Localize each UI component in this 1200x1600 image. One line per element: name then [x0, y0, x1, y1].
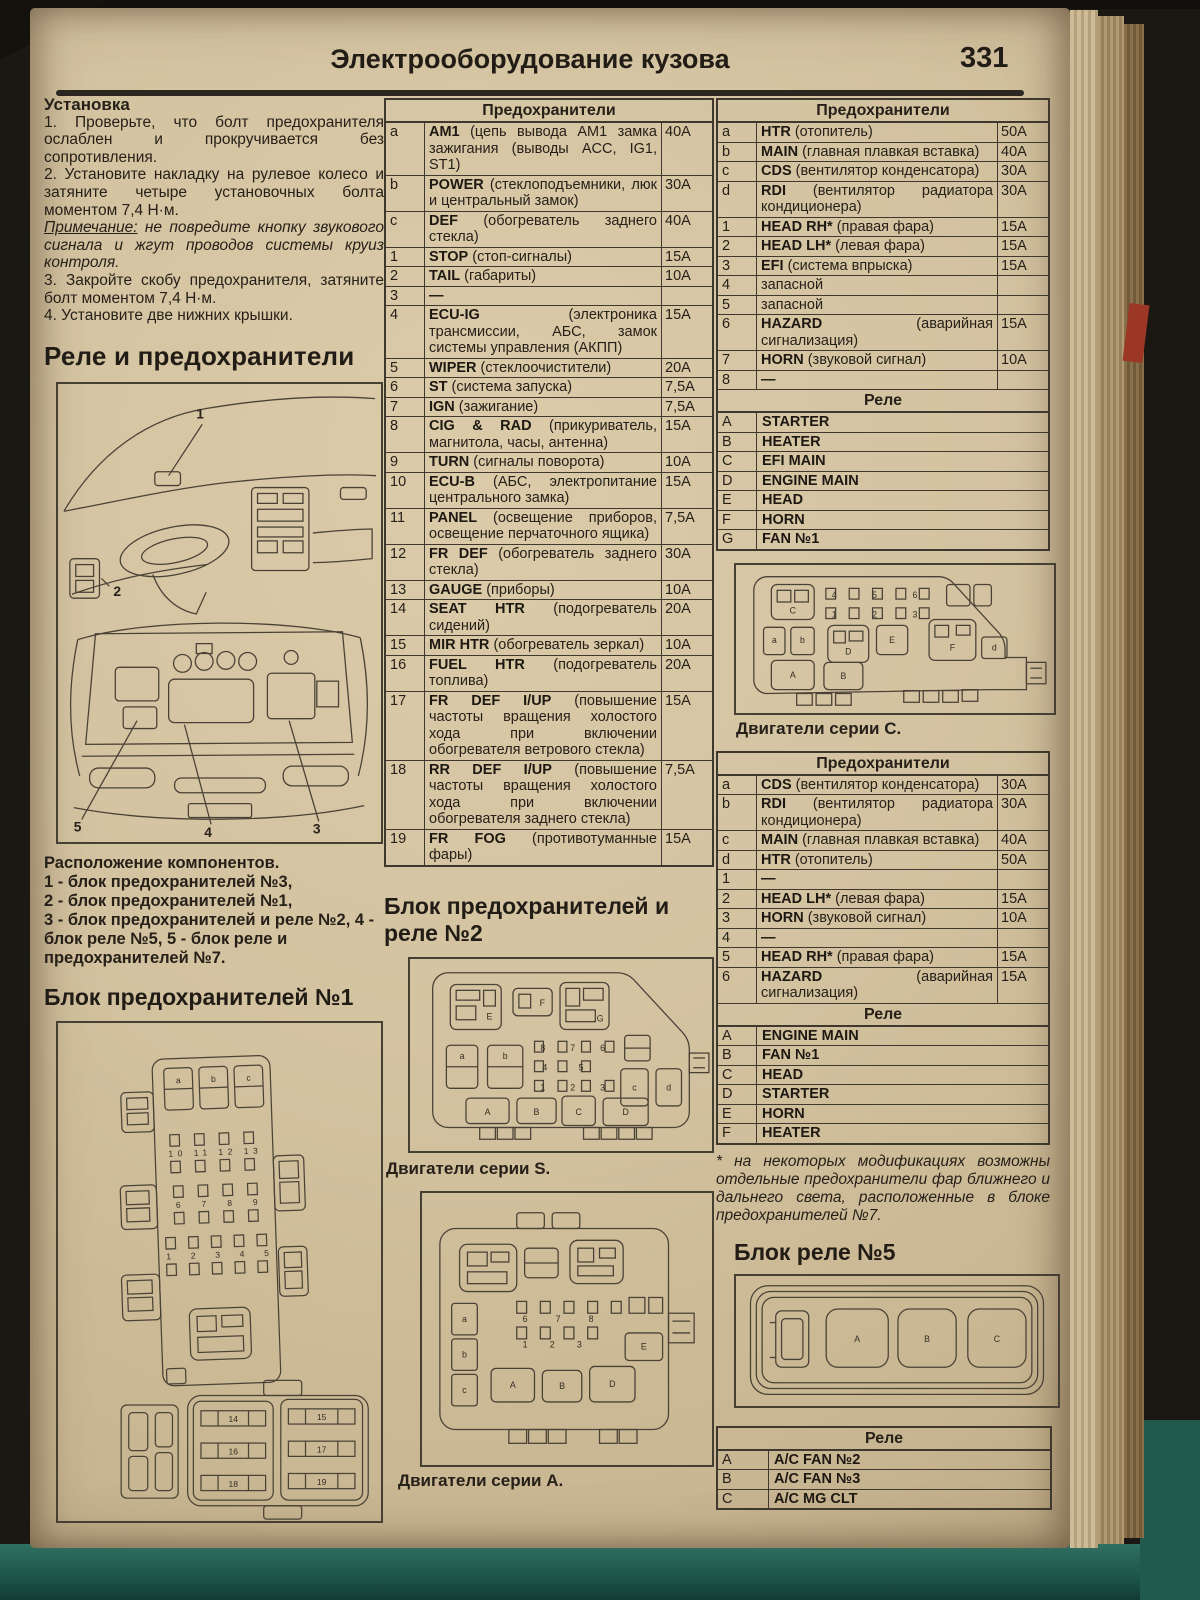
fuse-table-main: Предохранители a AM1 (цепь вывода AM1 за… [384, 98, 714, 867]
fuse-desc: CDS (вентилятор конденсатора) [757, 162, 997, 181]
fuse-id: 19 [386, 830, 425, 865]
relay-name: HEAD [757, 1066, 1048, 1085]
relay-E-label: E [889, 634, 895, 644]
fuse-id: d [718, 851, 757, 870]
fuse-row: 5 HEAD RH* (правая фара) 15A [718, 948, 1048, 968]
fuse-id: 7 [718, 351, 757, 370]
fuse-id: 3 [718, 257, 757, 276]
fuse-amp: 10A [661, 267, 712, 286]
fuse-amp: 15A [997, 257, 1048, 276]
relay-a-label: a [772, 634, 777, 644]
fuse-amp: 7,5A [661, 398, 712, 417]
relay-row: A STARTER [718, 413, 1048, 433]
relay-name: A/C FAN №2 [769, 1451, 1050, 1470]
relay-row: B A/C FAN №3 [718, 1470, 1050, 1490]
fuse-id: a [718, 776, 757, 795]
fuse-desc: HAZARD (аварийная сигнализация) [757, 968, 997, 1003]
fuse-id: 5 [386, 359, 425, 378]
relay-id: C [718, 1066, 757, 1085]
relay-id: A [718, 413, 757, 432]
fuse-table-r1-title: Предохранители [718, 100, 1048, 123]
fuse-amp: 30A [997, 162, 1048, 181]
fuse-row: 5 запасной [718, 296, 1048, 316]
fuse-desc: PANEL (освещение приборов, освещение пер… [425, 509, 661, 544]
fuse-row: 2 TAIL (габариты) 10A [386, 267, 712, 287]
relay-row: D ENGINE MAIN [718, 472, 1048, 492]
location-line: 3 - блок предохранителей и реле №2, 4 - … [44, 911, 384, 968]
relay-C-label: C [575, 1106, 582, 1116]
install-step: 4. Установите две нижних крышки. [44, 307, 384, 325]
fuse-row: 4 запасной [718, 276, 1048, 296]
fuse-desc: HEAD LH* (левая фара) [757, 890, 997, 909]
fuse-amp: 15A [997, 218, 1048, 237]
fuse-id: 5 [718, 296, 757, 315]
relay-row: B HEATER [718, 433, 1048, 453]
fuse-row: 2 HEAD LH* (левая фара) 15A [718, 890, 1048, 910]
relay-name: HORN [757, 1105, 1048, 1124]
install-step: 3. Закройте скобу предохранителя, затяни… [44, 272, 384, 307]
fuse-16-label: 16 [229, 1446, 239, 1456]
fuse-row: c MAIN (главная плавкая вставка) 40A [718, 831, 1048, 851]
fuse-row: 4 ECU-IG (электроника трансмиссии, АБС, … [386, 306, 712, 359]
fuse-id: 6 [386, 378, 425, 397]
fuse-id: 17 [386, 692, 425, 760]
series-a-diagram: 6 7 8 1 2 3 a b c A B D E [422, 1193, 712, 1465]
fuse-table-main-rows: a AM1 (цепь вывода AM1 замка зажигания (… [386, 123, 712, 865]
fuse-desc: RDI (вентилятор радиатора кондиционера) [757, 795, 997, 830]
fuse-id: 1 [718, 218, 757, 237]
fuse-amp [997, 929, 1048, 948]
series-c-caption: Двигатели серии C. [736, 719, 1050, 739]
fusebox2-heading: Блок предохранителей и реле №2 [384, 893, 684, 947]
fuse-desc: FR DEF (обогреватель заднего стекла) [425, 545, 661, 580]
fuse-table-main-title: Предохранители [386, 100, 712, 123]
relay-row: F HEATER [718, 1124, 1048, 1143]
relay-f-label: F [540, 998, 546, 1008]
fusebox1-figure: a b c 10 11 12 13 6 7 8 9 [56, 1021, 383, 1523]
callout-1: 1 [196, 405, 204, 421]
fuse-row: c DEF (обогреватель заднего стекла) 40A [386, 212, 712, 248]
fuse-desc: TAIL (габариты) [425, 267, 661, 286]
relay-name: FAN №1 [757, 530, 1048, 549]
fuse-row: 11 PANEL (освещение приборов, освещение … [386, 509, 712, 545]
fuse-b-label: b [211, 1074, 216, 1084]
fuse-desc: HTR (отопитель) [757, 123, 997, 142]
callout-5: 5 [74, 818, 82, 834]
fuse-amp: 20A [661, 359, 712, 378]
fuse-id: 8 [718, 371, 757, 390]
fuse-row: b RDI (вентилятор радиатора кондиционера… [718, 795, 1048, 831]
fuse-desc: CIG & RAD (прикуриватель, магнитола, час… [425, 417, 661, 452]
fuse-row: 1 HEAD RH* (правая фара) 15A [718, 218, 1048, 238]
relay-b-label: b [800, 634, 805, 644]
relay-A-label: A [485, 1106, 491, 1116]
fuse-row: 19 FR FOG (противотуманные фары) 15A [386, 830, 712, 865]
fuse-id: c [386, 212, 425, 247]
fuse-desc: SEAT HTR (подогреватель сидений) [425, 600, 661, 635]
relay-name: ENGINE MAIN [757, 1027, 1048, 1046]
fuse-desc: RDI (вентилятор радиатора кондиционера) [757, 182, 997, 217]
fuse-amp: 15A [661, 248, 712, 267]
relay-name: STARTER [757, 413, 1048, 432]
middle-column: Предохранители a AM1 (цепь вывода AM1 за… [384, 98, 714, 1491]
fuse-desc: — [757, 371, 997, 390]
series-s-figure: E F G a b 8 7 6 4 5 1 2 3 [408, 957, 714, 1153]
fuse-id: 4 [386, 306, 425, 358]
relay-row: C A/C MG CLT [718, 1490, 1050, 1509]
book-page: Электрооборудование кузова 331 Установка… [30, 8, 1070, 1548]
fuse-amp [661, 287, 712, 306]
fuse-row: 3 HORN (звуковой сигнал) 10A [718, 909, 1048, 929]
fuse-amp: 10A [997, 351, 1048, 370]
fuse-desc: ECU-IG (электроника трансмиссии, АБС, за… [425, 306, 661, 358]
relay-id: C [718, 452, 757, 471]
relay-name: HEATER [757, 433, 1048, 452]
fuse-id: b [718, 795, 757, 830]
fuse-row: 7 HORN (звуковой сигнал) 10A [718, 351, 1048, 371]
fuse-id: c [718, 162, 757, 181]
fuse-desc: запасной [757, 276, 997, 295]
fuse-id: b [718, 143, 757, 162]
fuse-amp: 20A [661, 656, 712, 691]
fuse-table-r2-rows: a CDS (вентилятор конденсатора) 30A b RD… [718, 776, 1048, 1004]
fuse-id: a [718, 123, 757, 142]
page-number: 331 [960, 42, 1050, 75]
fuse-id: 6 [718, 315, 757, 350]
fuse-row-6-9: 6 7 8 9 [176, 1197, 258, 1210]
relay-row: D STARTER [718, 1085, 1048, 1105]
fuse-relay-table-2: Предохранители a CDS (вентилятор конденс… [716, 751, 1050, 1145]
fuse-desc: TURN (сигналы поворота) [425, 453, 661, 472]
fuse-row: 2 HEAD LH* (левая фара) 15A [718, 237, 1048, 257]
fuse-id: 14 [386, 600, 425, 635]
fuse-amp: 15A [661, 473, 712, 508]
relay-A-label: A [790, 669, 796, 679]
relay-D-label: D [622, 1106, 628, 1116]
fuse-id: 3 [386, 287, 425, 306]
relay-B-label: B [840, 670, 846, 680]
location-lines: 1 - блок предохранителей №3,2 - блок пре… [44, 873, 384, 968]
fuse-amp: 7,5A [661, 378, 712, 397]
fuse-id: 1 [718, 870, 757, 889]
fuse-amp [997, 371, 1048, 390]
fuse-row: a CDS (вентилятор конденсатора) 30A [718, 776, 1048, 796]
callout-3: 3 [313, 820, 321, 836]
relay-table-r2-rows: A ENGINE MAIN B FAN №1 C HEAD [718, 1027, 1048, 1143]
relay-id: B [718, 1046, 757, 1065]
relay-name: A/C FAN №3 [769, 1470, 1050, 1489]
fuse-row: 9 TURN (сигналы поворота) 10A [386, 453, 712, 473]
relay-A-label: A [854, 1333, 860, 1343]
fuse-row: b MAIN (главная плавкая вставка) 40A [718, 143, 1048, 163]
relay-table-5-title: Реле [718, 1428, 1050, 1451]
fuse-row: a AM1 (цепь вывода AM1 замка зажигания (… [386, 123, 712, 176]
fuse-desc: MIR HTR (обогреватель зеркал) [425, 636, 661, 655]
fuse-amp: 30A [661, 176, 712, 211]
fuse-desc: EFI (система впрыска) [757, 257, 997, 276]
fuse-row-1-5: 1 2 3 4 5 [166, 1248, 269, 1262]
fuse-amp: 40A [997, 831, 1048, 850]
fuse-row: c CDS (вентилятор конденсатора) 30A [718, 162, 1048, 182]
relay-row: C HEAD [718, 1066, 1048, 1086]
relay-row: G FAN №1 [718, 530, 1048, 549]
fuse-row-876: 8 7 6 [540, 1043, 605, 1053]
series-s-caption: Двигатели серии S. [386, 1159, 714, 1179]
relay-c-label: c [462, 1385, 467, 1395]
fuse-desc: HEAD LH* (левая фара) [757, 237, 997, 256]
fuse-amp: 10A [997, 909, 1048, 928]
relay-B-label: B [924, 1333, 930, 1343]
fuse-desc: FR DEF I/UP (повышение частоты вращения … [425, 692, 661, 760]
callout-4: 4 [204, 824, 212, 840]
fuse-desc: DEF (обогреватель заднего стекла) [425, 212, 661, 247]
install-section: Установка 1. Проверьте, что болт предохр… [44, 96, 384, 325]
fuse-amp: 30A [997, 182, 1048, 217]
location-title: Расположение компонентов. [44, 854, 384, 873]
fuse-desc: GAUGE (приборы) [425, 581, 661, 600]
relay-row: B FAN №1 [718, 1046, 1048, 1066]
relay-row: C EFI MAIN [718, 452, 1048, 472]
relay-table-5: Реле A A/C FAN №2 B A/C FAN №3 [716, 1426, 1052, 1511]
relay-e-label: E [487, 1011, 493, 1021]
fuse-id: 8 [386, 417, 425, 452]
relay-table-5-rows: A A/C FAN №2 B A/C FAN №3 C A/C MG CLT [718, 1451, 1050, 1509]
fuse-row: 14 SEAT HTR (подогреватель сидений) 20A [386, 600, 712, 636]
fuse-desc: FUEL HTR (подогреватель топлива) [425, 656, 661, 691]
relay-name: STARTER [757, 1085, 1048, 1104]
fuse-desc: RR DEF I/UP (повышение частоты вращения … [425, 761, 661, 829]
fuse-id: 18 [386, 761, 425, 829]
relay-id: B [718, 433, 757, 452]
fuse-desc: POWER (стеклоподъемники, люк и центральн… [425, 176, 661, 211]
install-heading: Установка [44, 96, 384, 114]
relay-a-label: a [462, 1314, 467, 1324]
fuse-amp: 50A [997, 851, 1048, 870]
fuse-amp: 30A [661, 545, 712, 580]
fuse-row: 6 HAZARD (аварийная сигнализация) 15A [718, 968, 1048, 1004]
fuse-id: 2 [386, 267, 425, 286]
fuse-row-678: 6 7 8 [523, 1314, 594, 1324]
relay-row: A ENGINE MAIN [718, 1027, 1048, 1047]
fuse-row: 12 FR DEF (обогреватель заднего стекла) … [386, 545, 712, 581]
fuse-id: a [386, 123, 425, 175]
page-title: Электрооборудование кузова [90, 44, 970, 75]
relay-id: B [718, 1470, 769, 1489]
fuse-amp: 15A [661, 692, 712, 760]
fuse-desc: IGN (зажигание) [425, 398, 661, 417]
fuse-19-label: 19 [317, 1477, 327, 1487]
relay-id: G [718, 530, 757, 549]
location-line: 1 - блок предохранителей №3, [44, 873, 384, 892]
relaybox5-diagram: A B C [736, 1276, 1058, 1406]
fuse-id: 2 [718, 890, 757, 909]
fuse-row: 1 — [718, 870, 1048, 890]
relay-name: FAN №1 [757, 1046, 1048, 1065]
fuse-row: 18 RR DEF I/UP (повышение частоты вращен… [386, 761, 712, 830]
relay-id: D [718, 472, 757, 491]
headlight-footnote: * на некоторых модификациях возможны отд… [716, 1153, 1050, 1225]
install-step: 1. Проверьте, что болт предохранителя ос… [44, 114, 384, 167]
component-location-figure: 1 2 [56, 382, 383, 844]
fuse-desc: ECU-B (АБС, электропитание центрального … [425, 473, 661, 508]
relay-id: F [718, 1124, 757, 1143]
fuse-id: 4 [718, 929, 757, 948]
fuse-amp: 30A [997, 776, 1048, 795]
install-note: Примечание: не повредите кнопку звуковог… [44, 219, 384, 272]
fuse-row-45: 4 5 [542, 1062, 583, 1072]
relay-name: HORN [757, 511, 1048, 530]
relay-E-label: E [641, 1341, 647, 1351]
fuse-17-label: 17 [317, 1444, 327, 1454]
fuse-desc: — [425, 287, 661, 306]
fuse-row: 17 FR DEF I/UP (повышение частоты вращен… [386, 692, 712, 761]
page-edges [1098, 16, 1124, 1544]
install-steps2: 3. Закройте скобу предохранителя, затяни… [44, 272, 384, 325]
install-steps: 1. Проверьте, что болт предохранителя ос… [44, 114, 384, 220]
fuse-amp: 30A [997, 795, 1048, 830]
fuse-amp: 15A [997, 315, 1048, 350]
fuse-table-r1-rows: a HTR (отопитель) 50A b MAIN (главная пл… [718, 123, 1048, 390]
relay-table-r1-rows: A STARTER B HEATER C EFI MAIN [718, 413, 1048, 549]
fuse-desc: MAIN (главная плавкая вставка) [757, 143, 997, 162]
relay-b-label: b [462, 1349, 467, 1359]
fuse-row: 15 MIR HTR (обогреватель зеркал) 10A [386, 636, 712, 656]
fuse-id: 10 [386, 473, 425, 508]
relay-name: ENGINE MAIN [757, 472, 1048, 491]
install-step: 2. Установите накладку на рулевое колесо… [44, 166, 384, 219]
fuse-id: 1 [386, 248, 425, 267]
fuse-row: 13 GAUGE (приборы) 10A [386, 581, 712, 601]
fuse-row: 4 — [718, 929, 1048, 949]
fuse-id: 9 [386, 453, 425, 472]
series-a-figure: 6 7 8 1 2 3 a b c A B D E [420, 1191, 714, 1467]
fuse-id: 4 [718, 276, 757, 295]
relay-C-label: C [790, 605, 796, 615]
series-c-diagram: C 4 5 6 1 2 3 E F d a b [736, 565, 1054, 713]
relay-id: A [718, 1451, 769, 1470]
fuse-row: 16 FUEL HTR (подогреватель топлива) 20A [386, 656, 712, 692]
relay-A-label: A [510, 1380, 516, 1390]
fuse-row: 10 ECU-B (АБС, электропитание центрально… [386, 473, 712, 509]
relay-id: A [718, 1027, 757, 1046]
fuse-amp: 10A [661, 581, 712, 600]
relay-c-label: c [632, 1082, 637, 1092]
fuse-desc: ST (система запуска) [425, 378, 661, 397]
relay-a-label: a [460, 1050, 465, 1060]
fuse-desc: HORN (звуковой сигнал) [757, 351, 997, 370]
series-s-diagram: E F G a b 8 7 6 4 5 1 2 3 [410, 959, 712, 1151]
relay-row: F HORN [718, 511, 1048, 531]
fuse-amp: 40A [661, 123, 712, 175]
relay-d-label: d [666, 1082, 671, 1092]
relay-name: EFI MAIN [757, 452, 1048, 471]
fusebox1-heading: Блок предохранителей №1 [44, 984, 384, 1011]
fuse-amp: 15A [997, 237, 1048, 256]
fuse-id: b [386, 176, 425, 211]
fuse-row: 8 — [718, 371, 1048, 391]
relay-B-label: B [534, 1106, 540, 1116]
fuse-id: 13 [386, 581, 425, 600]
fuse-desc: HTR (отопитель) [757, 851, 997, 870]
fuse-amp: 15A [997, 968, 1048, 1003]
page-edges [1124, 24, 1144, 1538]
fuse-amp: 20A [661, 600, 712, 635]
fuse-id: 5 [718, 948, 757, 967]
relay-F-label: F [950, 642, 955, 652]
fusebox1-diagram: a b c 10 11 12 13 6 7 8 9 [58, 1023, 381, 1521]
fuse-row-123a: 1 2 3 [523, 1339, 582, 1349]
table-surface [0, 1544, 1200, 1600]
fuse-id: 15 [386, 636, 425, 655]
fuse-desc: — [757, 929, 997, 948]
relay-table-r2-title: Реле [718, 1004, 1048, 1027]
relay-id: F [718, 511, 757, 530]
fuse-table-r2-title: Предохранители [718, 753, 1048, 776]
fuse-desc: WIPER (стеклоочистители) [425, 359, 661, 378]
fuse-amp: 15A [997, 890, 1048, 909]
fuse-row-123: 1 2 3 [540, 1082, 605, 1092]
relay-row: E HEAD [718, 491, 1048, 511]
fuse-amp: 7,5A [661, 761, 712, 829]
book-photo: Электрооборудование кузова 331 Установка… [0, 0, 1200, 1600]
fuse-id: c [718, 831, 757, 850]
fuse-c-label: c [246, 1072, 251, 1082]
car-components-diagram: 1 2 [58, 384, 381, 842]
fuse-id: 6 [718, 968, 757, 1003]
note-label: Примечание: [44, 219, 138, 236]
fuse-id: 2 [718, 237, 757, 256]
fuse-id: 3 [718, 909, 757, 928]
fuse-desc: — [757, 870, 997, 889]
relaybox5-heading: Блок реле №5 [734, 1239, 1050, 1266]
relay-id: E [718, 1105, 757, 1124]
fuse-desc: HAZARD (аварийная сигнализация) [757, 315, 997, 350]
relay-id: D [718, 1085, 757, 1104]
fuse-amp: 40A [661, 212, 712, 247]
left-column: Установка 1. Проверьте, что болт предохр… [44, 96, 384, 1523]
table-surface-right [1140, 1420, 1200, 1600]
relay-name: HEAD [757, 491, 1048, 510]
fuse-desc: HEAD RH* (правая фара) [757, 218, 997, 237]
series-c-figure: C 4 5 6 1 2 3 E F d a b [734, 563, 1056, 715]
fuse-id: 16 [386, 656, 425, 691]
fuse-row: 8 CIG & RAD (прикуриватель, магнитола, ч… [386, 417, 712, 453]
fuse-amp: 15A [997, 948, 1048, 967]
fuse-row: 5 WIPER (стеклоочистители) 20A [386, 359, 712, 379]
fuse-desc: CDS (вентилятор конденсатора) [757, 776, 997, 795]
fuse-18-label: 18 [229, 1479, 239, 1489]
relays-fuses-heading: Реле и предохранители [44, 341, 384, 372]
relay-b-label: b [503, 1050, 508, 1060]
fuse-a-label: a [176, 1075, 181, 1085]
fuse-id: 12 [386, 545, 425, 580]
fuse-row: 1 STOP (стоп-сигналы) 15A [386, 248, 712, 268]
fuse-amp: 15A [661, 830, 712, 865]
right-column: Предохранители a HTR (отопитель) 50A b M… [716, 98, 1050, 1510]
relay-name: A/C MG CLT [769, 1490, 1050, 1509]
fuse-amp: 40A [997, 143, 1048, 162]
fuse-amp: 10A [661, 636, 712, 655]
fuse-desc: FR FOG (противотуманные фары) [425, 830, 661, 865]
fuse-id: 7 [386, 398, 425, 417]
relay-name: HEATER [757, 1124, 1048, 1143]
relay-row: A A/C FAN №2 [718, 1451, 1050, 1471]
fuse-row-10-13: 10 11 12 13 [168, 1145, 258, 1158]
fuse-desc: STOP (стоп-сигналы) [425, 248, 661, 267]
relay-g-label: G [597, 1013, 604, 1023]
location-line: 2 - блок предохранителей №1, [44, 892, 384, 911]
fuse-relay-table-1: Предохранители a HTR (отопитель) 50A b M… [716, 98, 1050, 551]
